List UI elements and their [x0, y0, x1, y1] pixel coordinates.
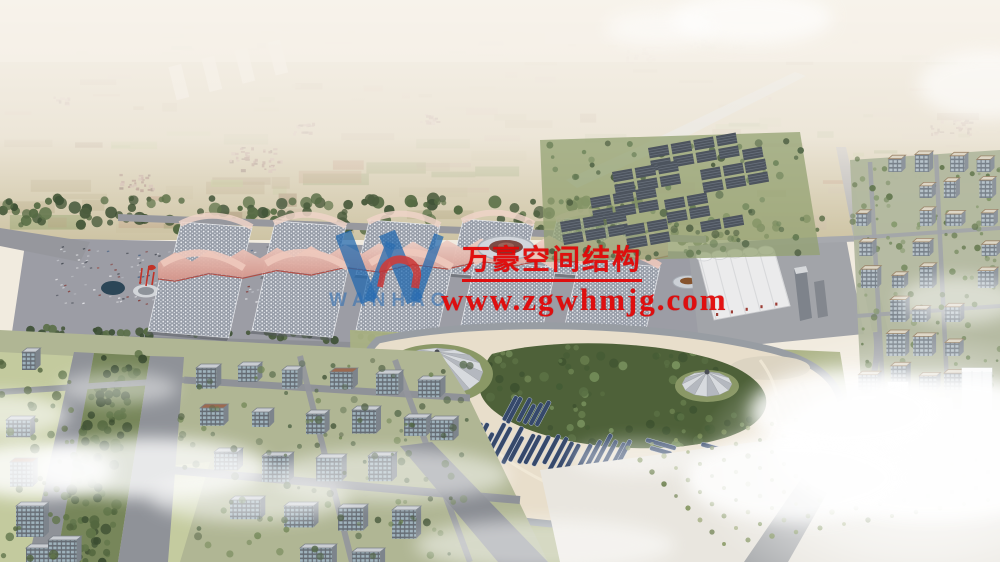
aerial-rendering-scene — [0, 0, 1000, 562]
rendering-viewport: WANHAO 万豪空间结构 www.zgwhmjg.com — [0, 0, 1000, 562]
dark-roof-arrays — [540, 132, 820, 262]
